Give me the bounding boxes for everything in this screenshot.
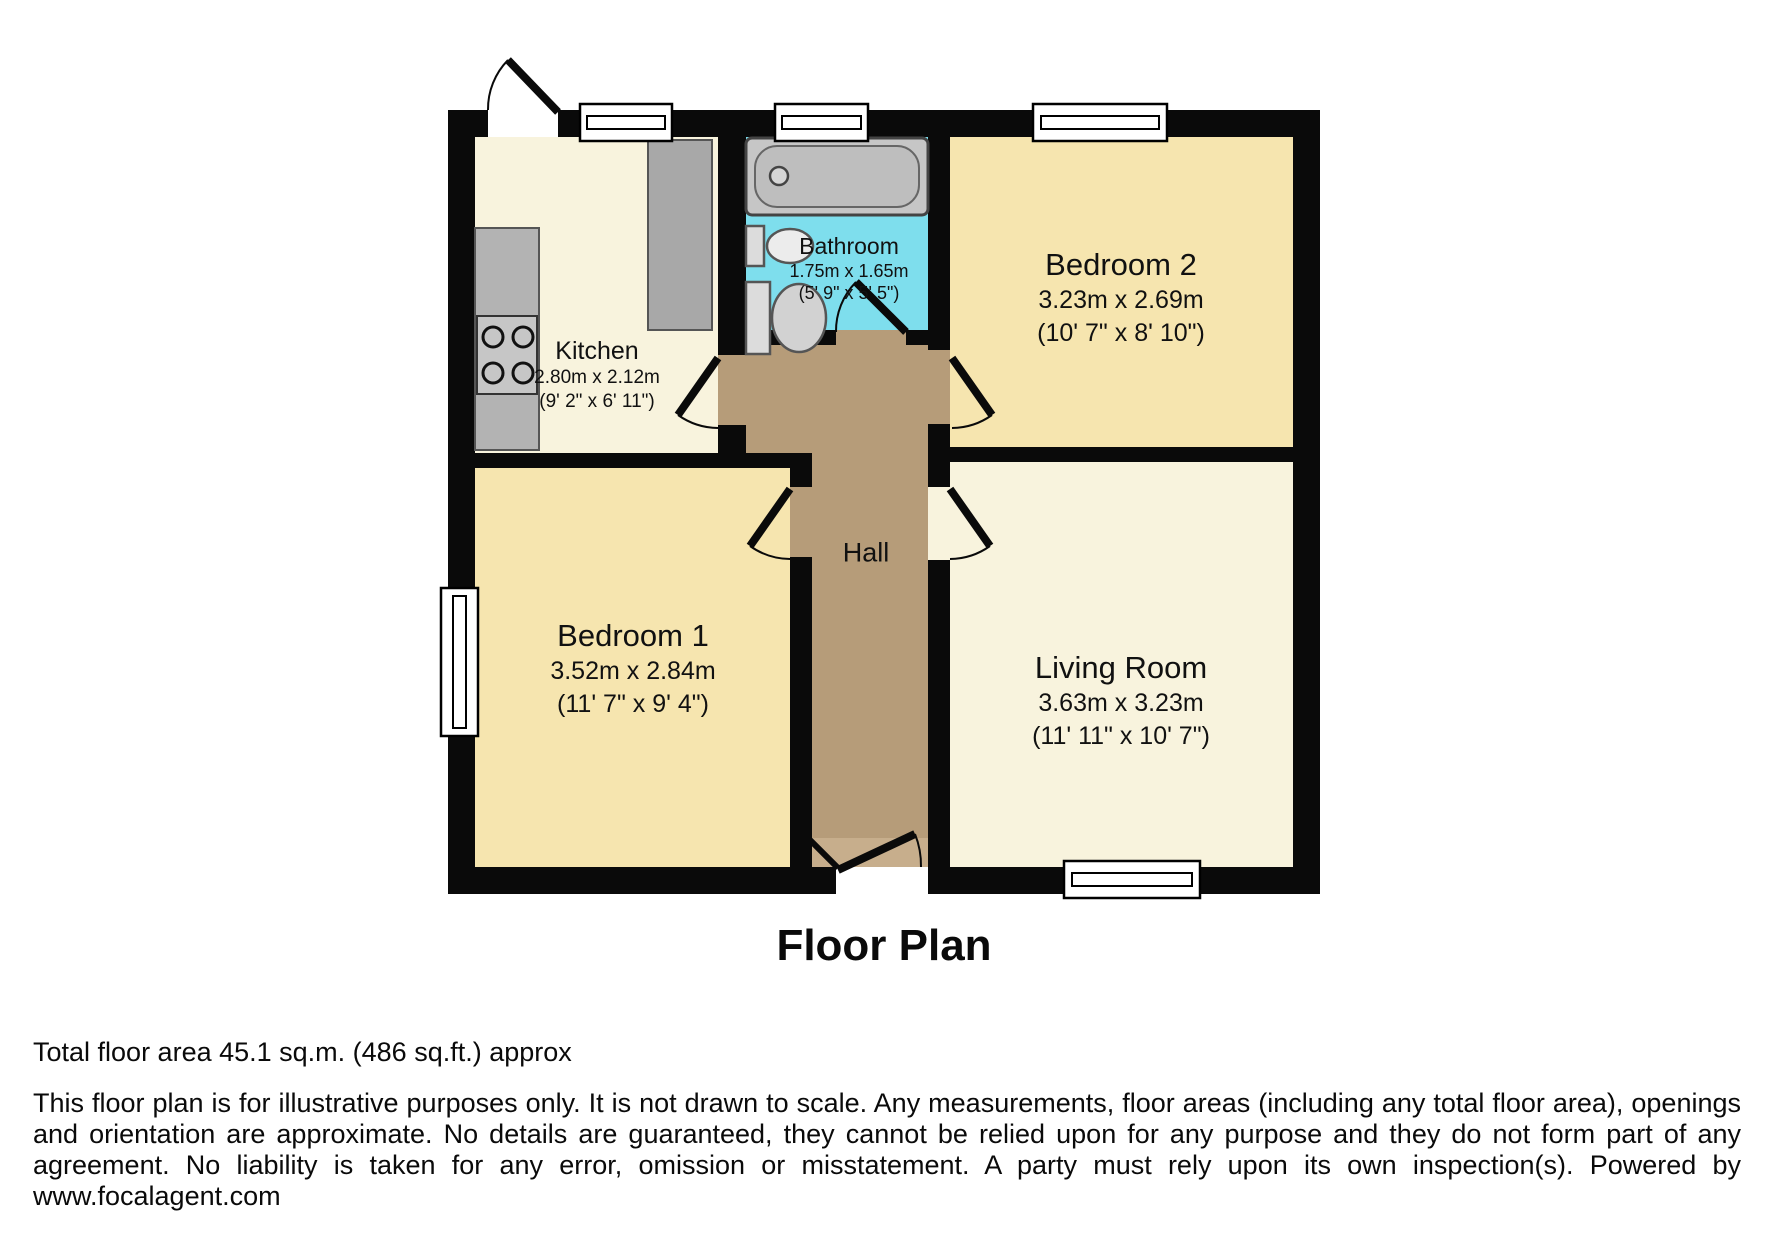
floorplan-page: Kitchen 2.80m x 2.12m (9' 2" x 6' 11") B… — [0, 0, 1771, 1239]
kitchen-hob — [477, 316, 537, 394]
kitchen-door-opening — [718, 355, 746, 425]
bathroom-label: Bathroom 1.75m x 1.65m (5' 9" x 5' 5") — [789, 232, 908, 304]
bedroom1-imperial: (11' 7" x 9' 4") — [550, 688, 715, 721]
bedroom2-door-opening — [928, 350, 950, 424]
kitchen-metric: 2.80m x 2.12m — [534, 366, 660, 390]
bedroom2-window — [1033, 104, 1167, 141]
entrance-door-opening — [836, 867, 928, 894]
livingroom-label: Living Room 3.63m x 3.23m (11' 11" x 10'… — [1032, 649, 1210, 753]
kitchen-window — [580, 104, 672, 141]
bedroom1-metric: 3.52m x 2.84m — [550, 655, 715, 688]
bathroom-imperial: (5' 9" x 5' 5") — [789, 282, 908, 304]
bedroom1-window — [441, 588, 478, 736]
bathroom-metric: 1.75m x 1.65m — [789, 260, 908, 282]
hall-floor-upper — [746, 345, 928, 453]
bathtub — [746, 138, 928, 215]
disclaimer-text: This floor plan is for illustrative purp… — [33, 1088, 1741, 1212]
hall-floor-lower — [812, 453, 928, 867]
bedroom1-label: Bedroom 1 3.52m x 2.84m (11' 7" x 9' 4") — [550, 617, 715, 721]
kitchen-unit — [648, 140, 712, 330]
livingroom-imperial: (11' 11" x 10' 7") — [1032, 720, 1210, 753]
kitchen-imperial: (9' 2" x 6' 11") — [534, 390, 660, 414]
bedroom2-name: Bedroom 2 — [1037, 246, 1205, 284]
kitchen-name: Kitchen — [534, 336, 660, 366]
livingroom-window — [1064, 861, 1200, 898]
footer: Total floor area 45.1 sq.m. (486 sq.ft.)… — [33, 1036, 1741, 1212]
bathroom-name: Bathroom — [789, 232, 908, 260]
hall-label: Hall — [843, 538, 890, 569]
bedroom2-metric: 3.23m x 2.69m — [1037, 284, 1205, 317]
livingroom-door-opening — [928, 487, 950, 560]
bathroom-door-opening — [836, 330, 906, 345]
total-floor-area: Total floor area 45.1 sq.m. (486 sq.ft.)… — [33, 1036, 1741, 1068]
bathroom-window — [775, 104, 868, 141]
plan-title: Floor Plan — [776, 921, 991, 971]
bedroom2-label: Bedroom 2 3.23m x 2.69m (10' 7" x 8' 10"… — [1037, 246, 1205, 350]
bedroom1-name: Bedroom 1 — [550, 617, 715, 655]
kitchen-label: Kitchen 2.80m x 2.12m (9' 2" x 6' 11") — [534, 336, 660, 414]
bedroom2-imperial: (10' 7" x 8' 10") — [1037, 317, 1205, 350]
livingroom-name: Living Room — [1032, 649, 1210, 687]
rear-door — [488, 60, 558, 112]
livingroom-metric: 3.63m x 3.23m — [1032, 687, 1210, 720]
rear-door-opening — [488, 110, 558, 137]
bedroom1-door-opening — [790, 487, 812, 557]
